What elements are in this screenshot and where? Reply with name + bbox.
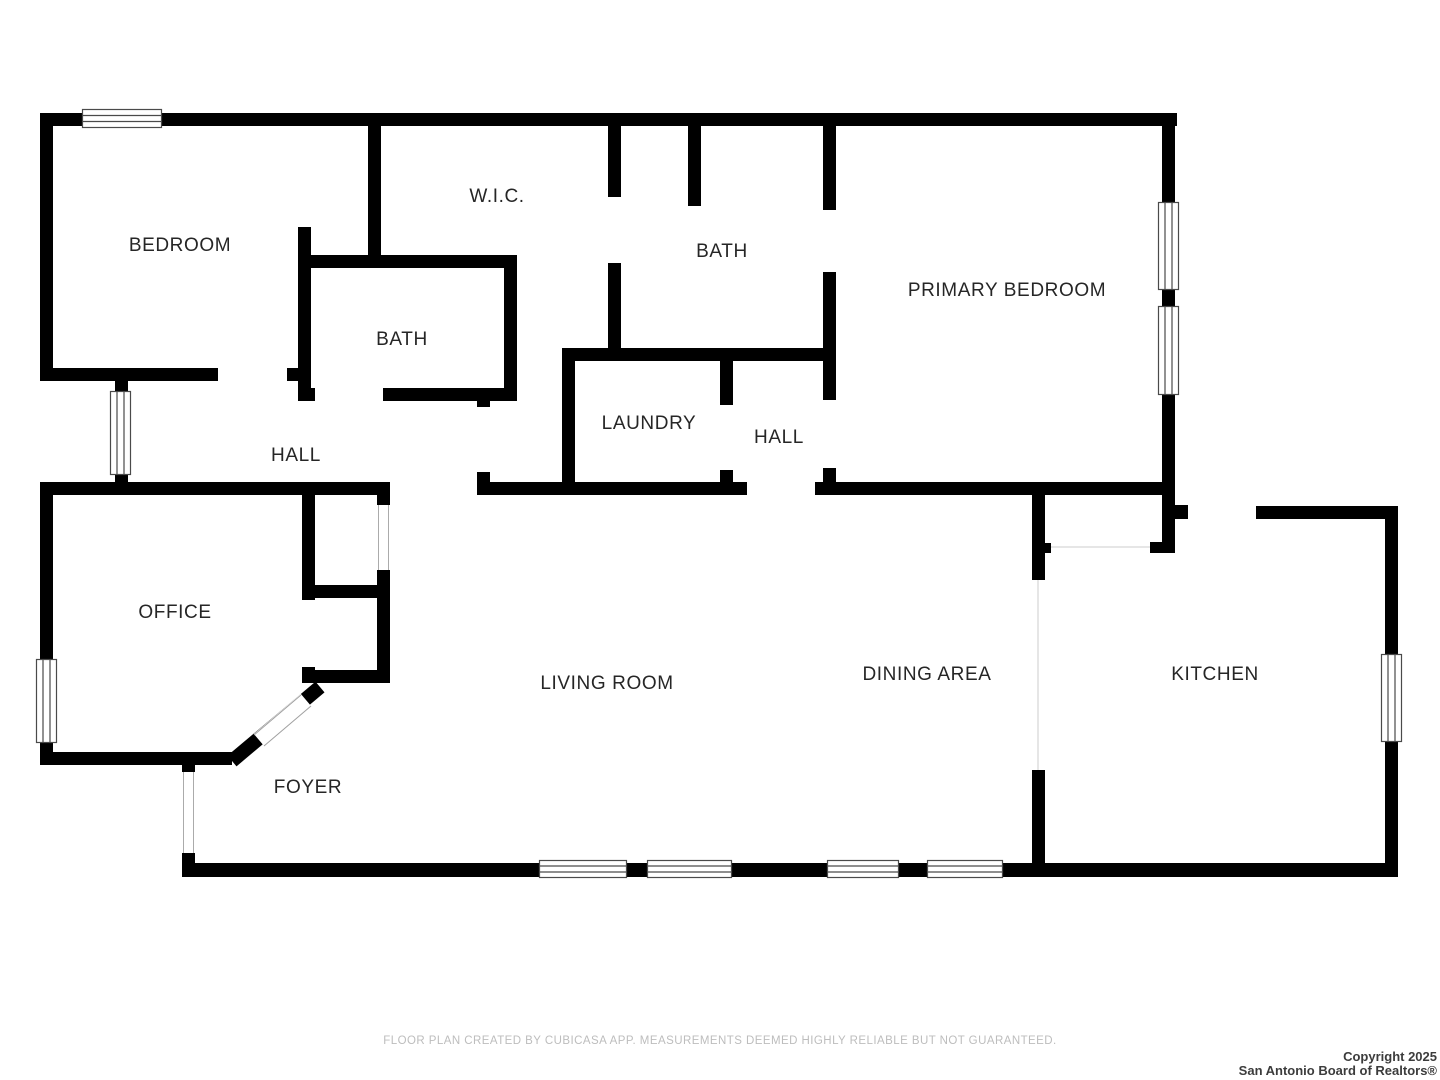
room-label-hall-upper: HALL	[754, 427, 804, 449]
room-label-living-room: LIVING ROOM	[540, 673, 673, 695]
window-icon	[540, 861, 627, 878]
window-icon	[37, 660, 57, 743]
room-label-wic: W.I.C.	[469, 186, 524, 208]
floor-plan-page: BEDROOM W.I.C. BATH PRIMARY BEDROOM BATH…	[0, 0, 1440, 1080]
room-label-office: OFFICE	[138, 602, 211, 624]
office-diagonal-wall	[232, 687, 320, 761]
room-label-laundry: LAUNDRY	[602, 413, 697, 435]
copyright-line1: Copyright 2025	[1239, 1050, 1437, 1064]
room-label-primary-bedroom: PRIMARY BEDROOM	[908, 280, 1106, 302]
window-icon	[1159, 307, 1179, 395]
window-icon	[111, 392, 131, 475]
window-icon	[928, 861, 1003, 878]
window-icon	[1382, 655, 1402, 742]
entry-door-opening	[184, 772, 194, 853]
room-label-hall-lower: HALL	[271, 445, 321, 467]
window-icon	[83, 110, 162, 128]
copyright-line2: San Antonio Board of Realtors®	[1239, 1064, 1437, 1078]
room-label-kitchen: KITCHEN	[1171, 664, 1259, 686]
room-label-bath-upper: BATH	[696, 241, 748, 263]
copyright-notice: Copyright 2025 San Antonio Board of Real…	[1239, 1050, 1437, 1078]
room-label-bath-lower: BATH	[376, 329, 428, 351]
room-label-bedroom: BEDROOM	[129, 235, 231, 257]
window-icon	[828, 861, 899, 878]
disclaimer-text: FLOOR PLAN CREATED BY CUBICASA APP. MEAS…	[0, 1035, 1440, 1047]
window-icon	[1159, 203, 1179, 290]
room-boundary-lines	[1038, 547, 1150, 770]
floor-plan-drawing	[0, 0, 1440, 1080]
closet-door-opening	[379, 505, 389, 570]
window-icon	[648, 861, 732, 878]
room-label-foyer: FOYER	[274, 777, 342, 799]
walls	[40, 113, 1398, 877]
room-label-dining-area: DINING AREA	[862, 664, 991, 686]
